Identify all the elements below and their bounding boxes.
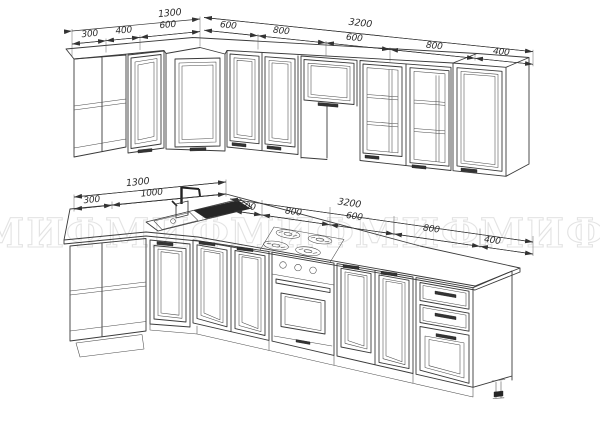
corner-wall-cabinet-600 [166, 54, 225, 152]
watermark-text: МИФ [480, 210, 600, 257]
drawer-base-cabinet-400 [416, 271, 512, 399]
flip-up-wall-cabinet-600 [301, 56, 357, 160]
adjustable-foot [492, 380, 505, 399]
base-cabinet-double-800-right [337, 264, 413, 374]
drawer-handle [436, 334, 456, 341]
door-handle [138, 149, 152, 154]
oven-knob [280, 262, 287, 269]
dim-label: 600 [219, 20, 237, 32]
door-handle [190, 148, 206, 152]
oven-knob [310, 267, 317, 274]
oven-knob [295, 264, 302, 271]
upper-dimensions: 1300 300 400 600 3200 600 800 600 800 40… [72, 7, 533, 66]
drawer-handle [435, 291, 456, 298]
kitchen-elevation-svg: МИФ МИФ МИФ МИФ МИФ [0, 0, 600, 424]
dim-label: 800 [425, 41, 443, 53]
wall-cabinet-double-800 [227, 51, 298, 155]
dim-label-upper-total-right: 3200 [348, 17, 373, 30]
dim-label: 300 [81, 29, 99, 41]
dim-label: 800 [272, 26, 290, 38]
dim-label-lower-total-left: 1300 [126, 176, 150, 189]
dim-label-lower-total-right: 3200 [337, 196, 362, 210]
dim-label: 600 [345, 33, 363, 45]
oven [272, 252, 334, 355]
glass-wall-cabinet-800 [360, 61, 451, 171]
upper-row-drawing: 1300 300 400 600 3200 600 800 600 800 40… [66, 7, 533, 176]
wall-cabinet-end-400 [453, 54, 529, 177]
kitchen-technical-drawing-page: МИФ МИФ МИФ МИФ МИФ [0, 0, 600, 424]
dim-label-upper-total-left: 1300 [158, 7, 182, 20]
dim-label: 300 [83, 195, 101, 207]
watermark-text: МИФ [0, 210, 106, 257]
oven-window [281, 293, 325, 334]
dim-label: 400 [492, 47, 510, 59]
wall-open-corner-shelf [74, 55, 126, 157]
oven-handle [276, 279, 330, 293]
plinth [150, 324, 473, 397]
wall-cabinet-400 [128, 51, 164, 153]
drawer-handle [435, 313, 456, 320]
dim-label: 1000 [140, 187, 163, 199]
dim-label: 600 [159, 20, 177, 32]
dim-label: 400 [115, 25, 133, 37]
